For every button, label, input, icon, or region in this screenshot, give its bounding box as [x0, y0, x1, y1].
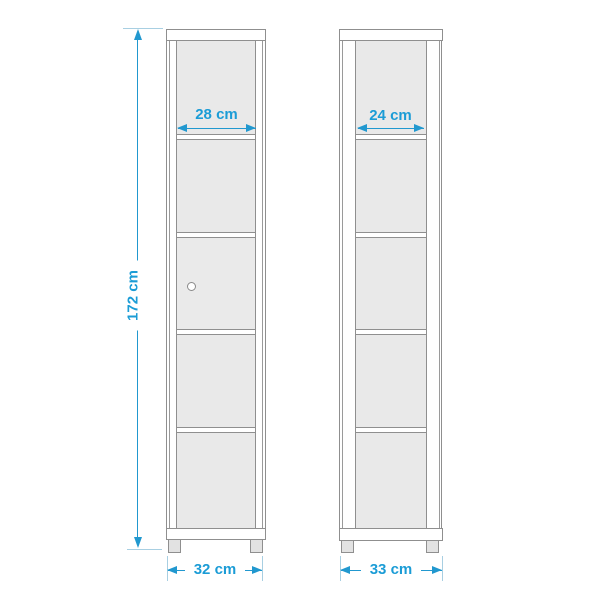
arrowhead-up-icon	[134, 29, 142, 40]
arrowhead-left-icon	[167, 566, 177, 574]
side-frame-line	[342, 40, 343, 529]
cabinet-foot	[341, 540, 354, 553]
door-panel	[177, 238, 255, 329]
front-inner-width-label: 28 cm	[186, 106, 247, 123]
shelf	[356, 329, 426, 335]
shelf	[177, 134, 255, 140]
arrowhead-right-icon	[414, 124, 424, 132]
arrowhead-down-icon	[134, 537, 142, 548]
top-panel	[339, 29, 443, 41]
side-inner-width-label: 24 cm	[360, 107, 421, 124]
cabinet-foot	[426, 540, 439, 553]
cabinet-foot	[168, 539, 181, 553]
arrowhead-right-icon	[432, 566, 442, 574]
height-dimension-label: 172 cm	[125, 261, 142, 331]
dimension-extension-line	[262, 556, 263, 581]
shelf	[356, 232, 426, 238]
shelf	[356, 134, 426, 140]
front-outer-width-label: 32 cm	[185, 561, 245, 579]
side-frame-line	[169, 40, 170, 529]
arrowhead-left-icon	[340, 566, 350, 574]
dimension-extension-line	[442, 556, 443, 581]
arrowhead-right-icon	[252, 566, 262, 574]
cabinet-dimension-diagram: 172 cm 28 cm 24 cm 32 cm 33 cm	[0, 0, 600, 600]
shelf	[356, 427, 426, 433]
dimension-extension-line	[127, 549, 162, 550]
side-frame-line	[262, 40, 263, 529]
arrowhead-left-icon	[357, 124, 367, 132]
top-panel	[166, 29, 266, 41]
front-inner-width-line	[178, 128, 256, 129]
cabinet-foot	[250, 539, 263, 553]
arrowhead-right-icon	[246, 124, 256, 132]
arrowhead-left-icon	[177, 124, 187, 132]
shelf	[177, 427, 255, 433]
door-knob	[187, 282, 196, 291]
side-outer-width-label: 33 cm	[361, 561, 421, 579]
side-frame-line	[439, 40, 440, 529]
shelf	[177, 329, 255, 335]
dimension-extension-line	[123, 28, 163, 29]
